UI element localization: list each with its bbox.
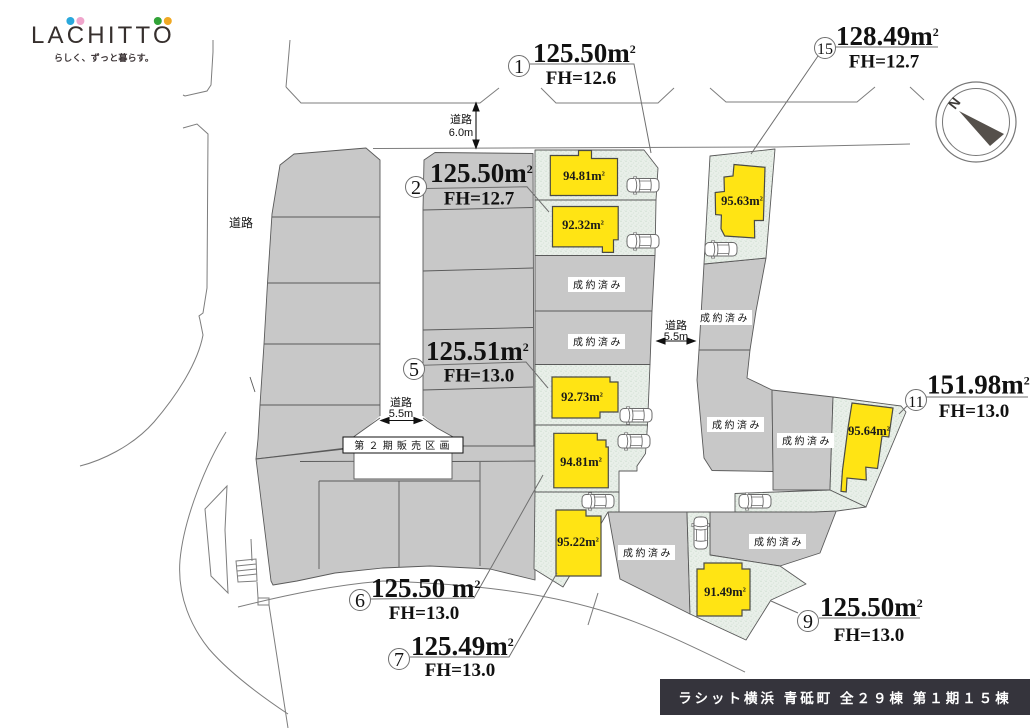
- svg-text:FH=12.6: FH=12.6: [546, 68, 616, 89]
- svg-text:1: 1: [514, 56, 524, 78]
- svg-text:LACHITTO: LACHITTO: [31, 22, 175, 49]
- svg-text:92.73m2: 92.73m2: [561, 390, 603, 404]
- svg-text:125.50m2: 125.50m2: [820, 592, 923, 622]
- svg-text:9: 9: [803, 611, 813, 633]
- svg-text:成約済み: 成約済み: [782, 435, 832, 448]
- svg-text:ラシット横浜 青砥町 全２９棟 第１期１５棟: ラシット横浜 青砥町 全２９棟 第１期１５棟: [678, 690, 1011, 706]
- svg-text:成約済み: 成約済み: [623, 547, 673, 560]
- svg-text:94.81m2: 94.81m2: [563, 169, 605, 183]
- svg-text:道路: 道路: [450, 112, 472, 126]
- svg-text:成約済み: 成約済み: [754, 536, 804, 549]
- svg-text:道路: 道路: [390, 395, 412, 409]
- svg-text:125.50m2: 125.50m2: [533, 38, 636, 68]
- svg-text:FH=12.7: FH=12.7: [444, 189, 515, 210]
- svg-text:91.49m2: 91.49m2: [704, 585, 746, 599]
- svg-text:成約済み: 成約済み: [700, 312, 750, 325]
- svg-text:2: 2: [411, 177, 421, 199]
- svg-text:成約済み: 成約済み: [573, 279, 623, 292]
- svg-text:125.50 m2: 125.50 m2: [371, 573, 481, 603]
- svg-text:125.51m2: 125.51m2: [426, 336, 529, 366]
- svg-text:151.98m2: 151.98m2: [927, 370, 1030, 400]
- svg-text:第２期販売区画: 第２期販売区画: [354, 439, 453, 452]
- svg-text:道路: 道路: [665, 318, 687, 332]
- svg-text:94.81m2: 94.81m2: [560, 455, 602, 469]
- svg-text:FH=13.0: FH=13.0: [939, 401, 1009, 422]
- svg-text:95.64m2: 95.64m2: [848, 424, 890, 438]
- svg-text:15: 15: [817, 41, 833, 58]
- svg-text:5: 5: [409, 359, 419, 381]
- svg-text:FH=13.0: FH=13.0: [425, 660, 495, 681]
- svg-text:125.50m2: 125.50m2: [430, 158, 533, 188]
- svg-text:5.5m: 5.5m: [389, 408, 413, 420]
- svg-text:6: 6: [355, 590, 365, 612]
- svg-text:95.22m2: 95.22m2: [557, 535, 599, 549]
- svg-text:FH=12.7: FH=12.7: [849, 52, 920, 73]
- svg-text:FH=13.0: FH=13.0: [389, 603, 459, 624]
- svg-text:成約済み: 成約済み: [712, 419, 762, 432]
- svg-text:11: 11: [908, 394, 923, 411]
- svg-text:92.32m2: 92.32m2: [562, 218, 604, 232]
- svg-text:128.49m2: 128.49m2: [836, 21, 939, 51]
- svg-text:95.63m2: 95.63m2: [721, 194, 763, 208]
- svg-text:道路: 道路: [229, 215, 253, 230]
- svg-text:FH=13.0: FH=13.0: [444, 366, 514, 387]
- svg-text:7: 7: [394, 649, 404, 671]
- svg-text:FH=13.0: FH=13.0: [834, 625, 904, 646]
- svg-text:らしく、ずっと暮らす。: らしく、ずっと暮らす。: [54, 52, 154, 63]
- svg-text:成約済み: 成約済み: [573, 336, 623, 349]
- svg-text:125.49m2: 125.49m2: [411, 631, 514, 661]
- svg-text:6.0m: 6.0m: [449, 127, 473, 139]
